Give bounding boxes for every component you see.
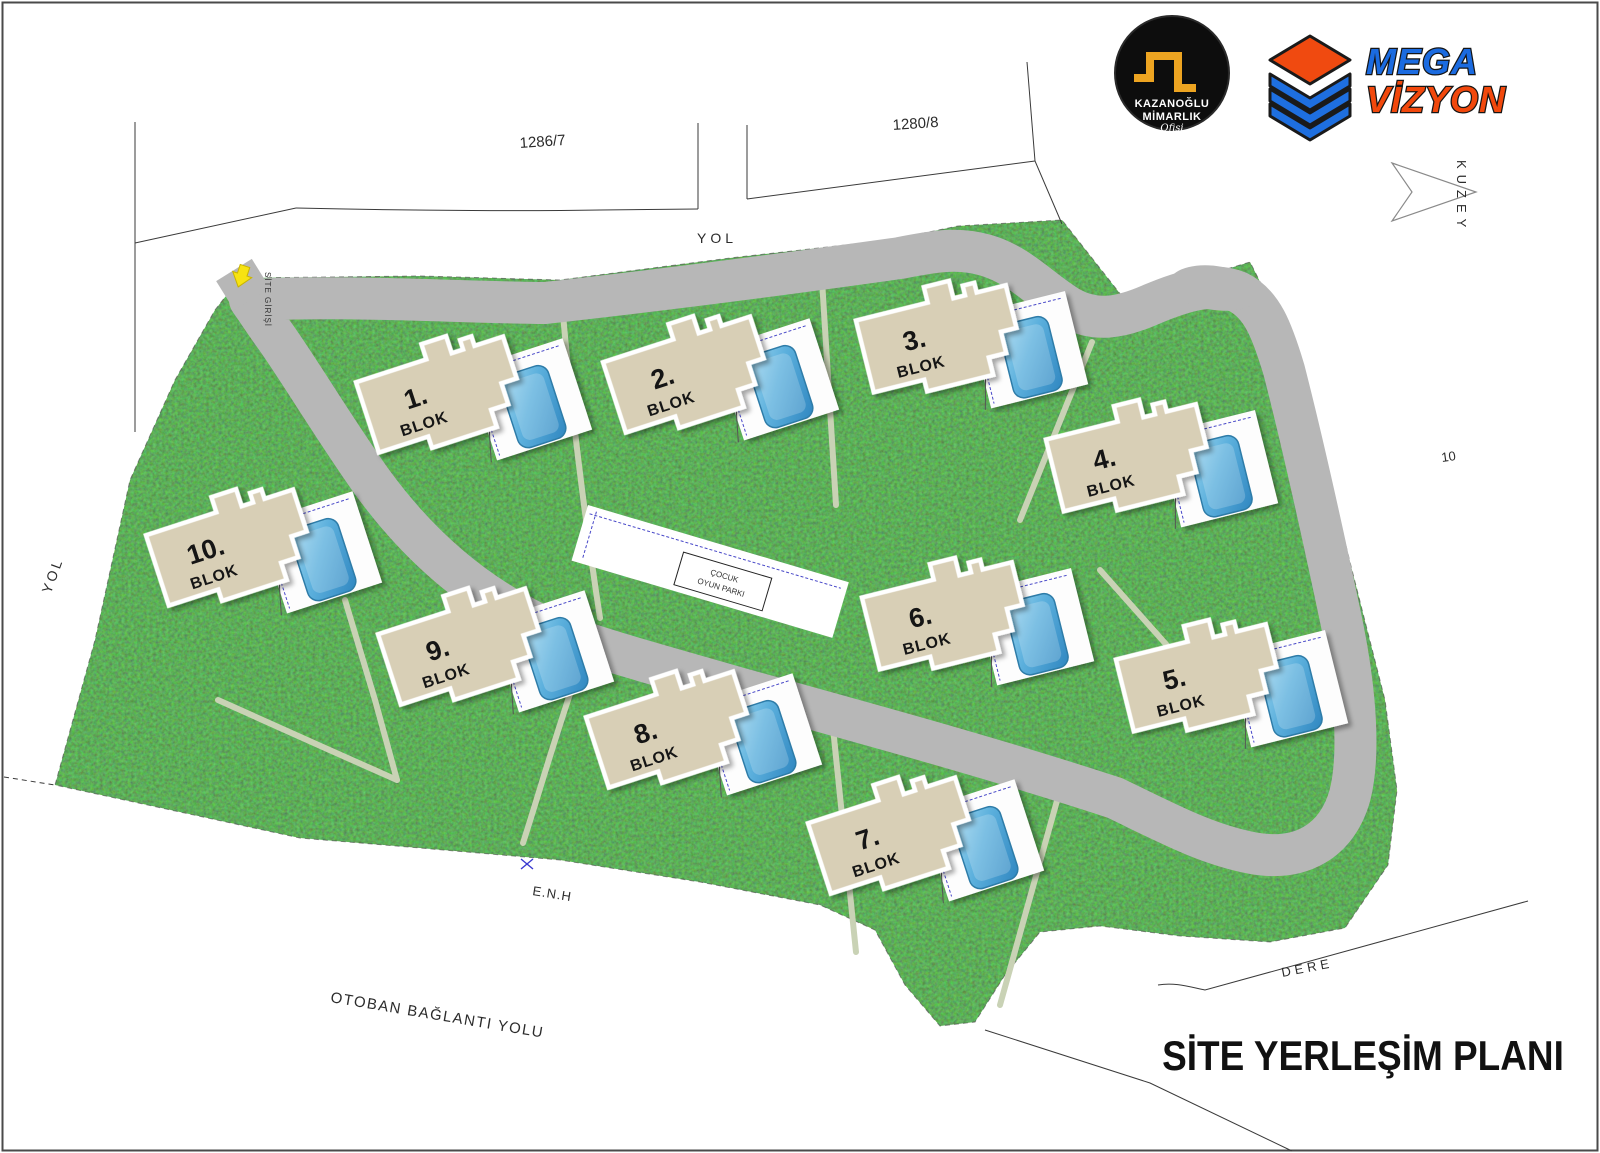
architect-name-line2: MİMARLIK: [1143, 110, 1202, 123]
sheet-title: SİTE YERLEŞİM PLANI: [1162, 1033, 1564, 1080]
parcel-label-10: 10: [1440, 448, 1456, 465]
site-entrance-label: SİTE GİRİŞİ: [263, 272, 272, 327]
sheet-title-group: SİTE YERLEŞİM PLANI: [1162, 1033, 1564, 1080]
developer-word2: VİZYON: [1366, 79, 1506, 120]
architect-name-line3: Ofisi: [1160, 123, 1183, 134]
north-label: KUZEY: [1454, 160, 1469, 233]
parcel-label-1286-7: 1286/7: [519, 132, 566, 152]
site-plan-sheet: ÇOCUK OYUN PARKI 1. BLOK 2. BLOK 3. BLOK: [0, 0, 1600, 1153]
road-label-top: YOL: [697, 230, 737, 246]
architect-name-line1: KAZANOĞLU: [1135, 97, 1210, 110]
site-plan-canvas: ÇOCUK OYUN PARKI 1. BLOK 2. BLOK 3. BLOK: [0, 0, 1600, 1153]
parcel-label-1280-8: 1280/8: [892, 114, 939, 134]
developer-word1: MEGA: [1366, 41, 1478, 82]
